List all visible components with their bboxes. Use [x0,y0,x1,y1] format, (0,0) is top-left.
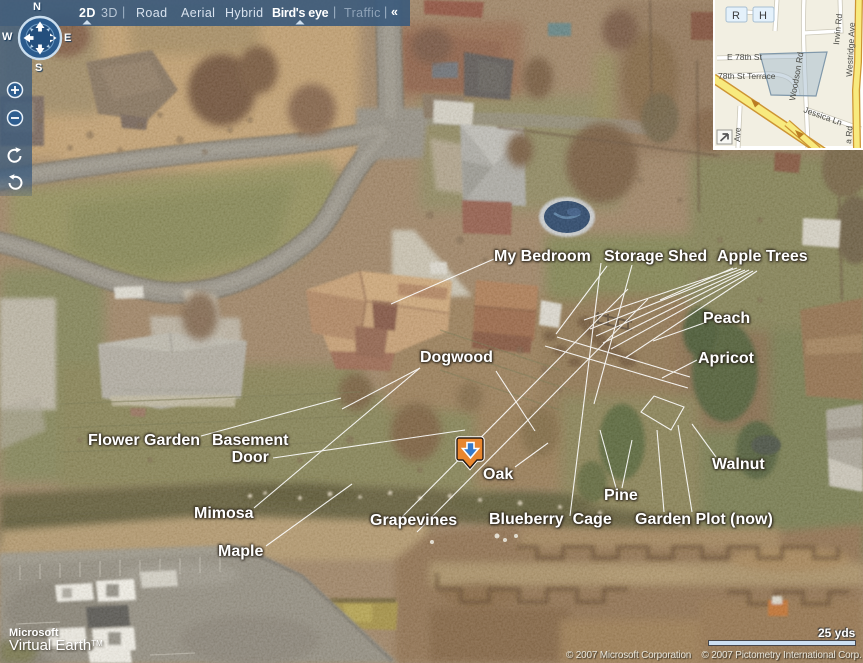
svg-text:R: R [732,10,740,22]
svg-text:E 78th St: E 78th St [727,52,763,62]
svg-text:H: H [759,10,767,22]
svg-text:Ave: Ave [732,127,743,142]
svg-text:a Rd: a Rd [843,125,855,144]
svg-text:78th St Terrace: 78th St Terrace [718,71,776,81]
